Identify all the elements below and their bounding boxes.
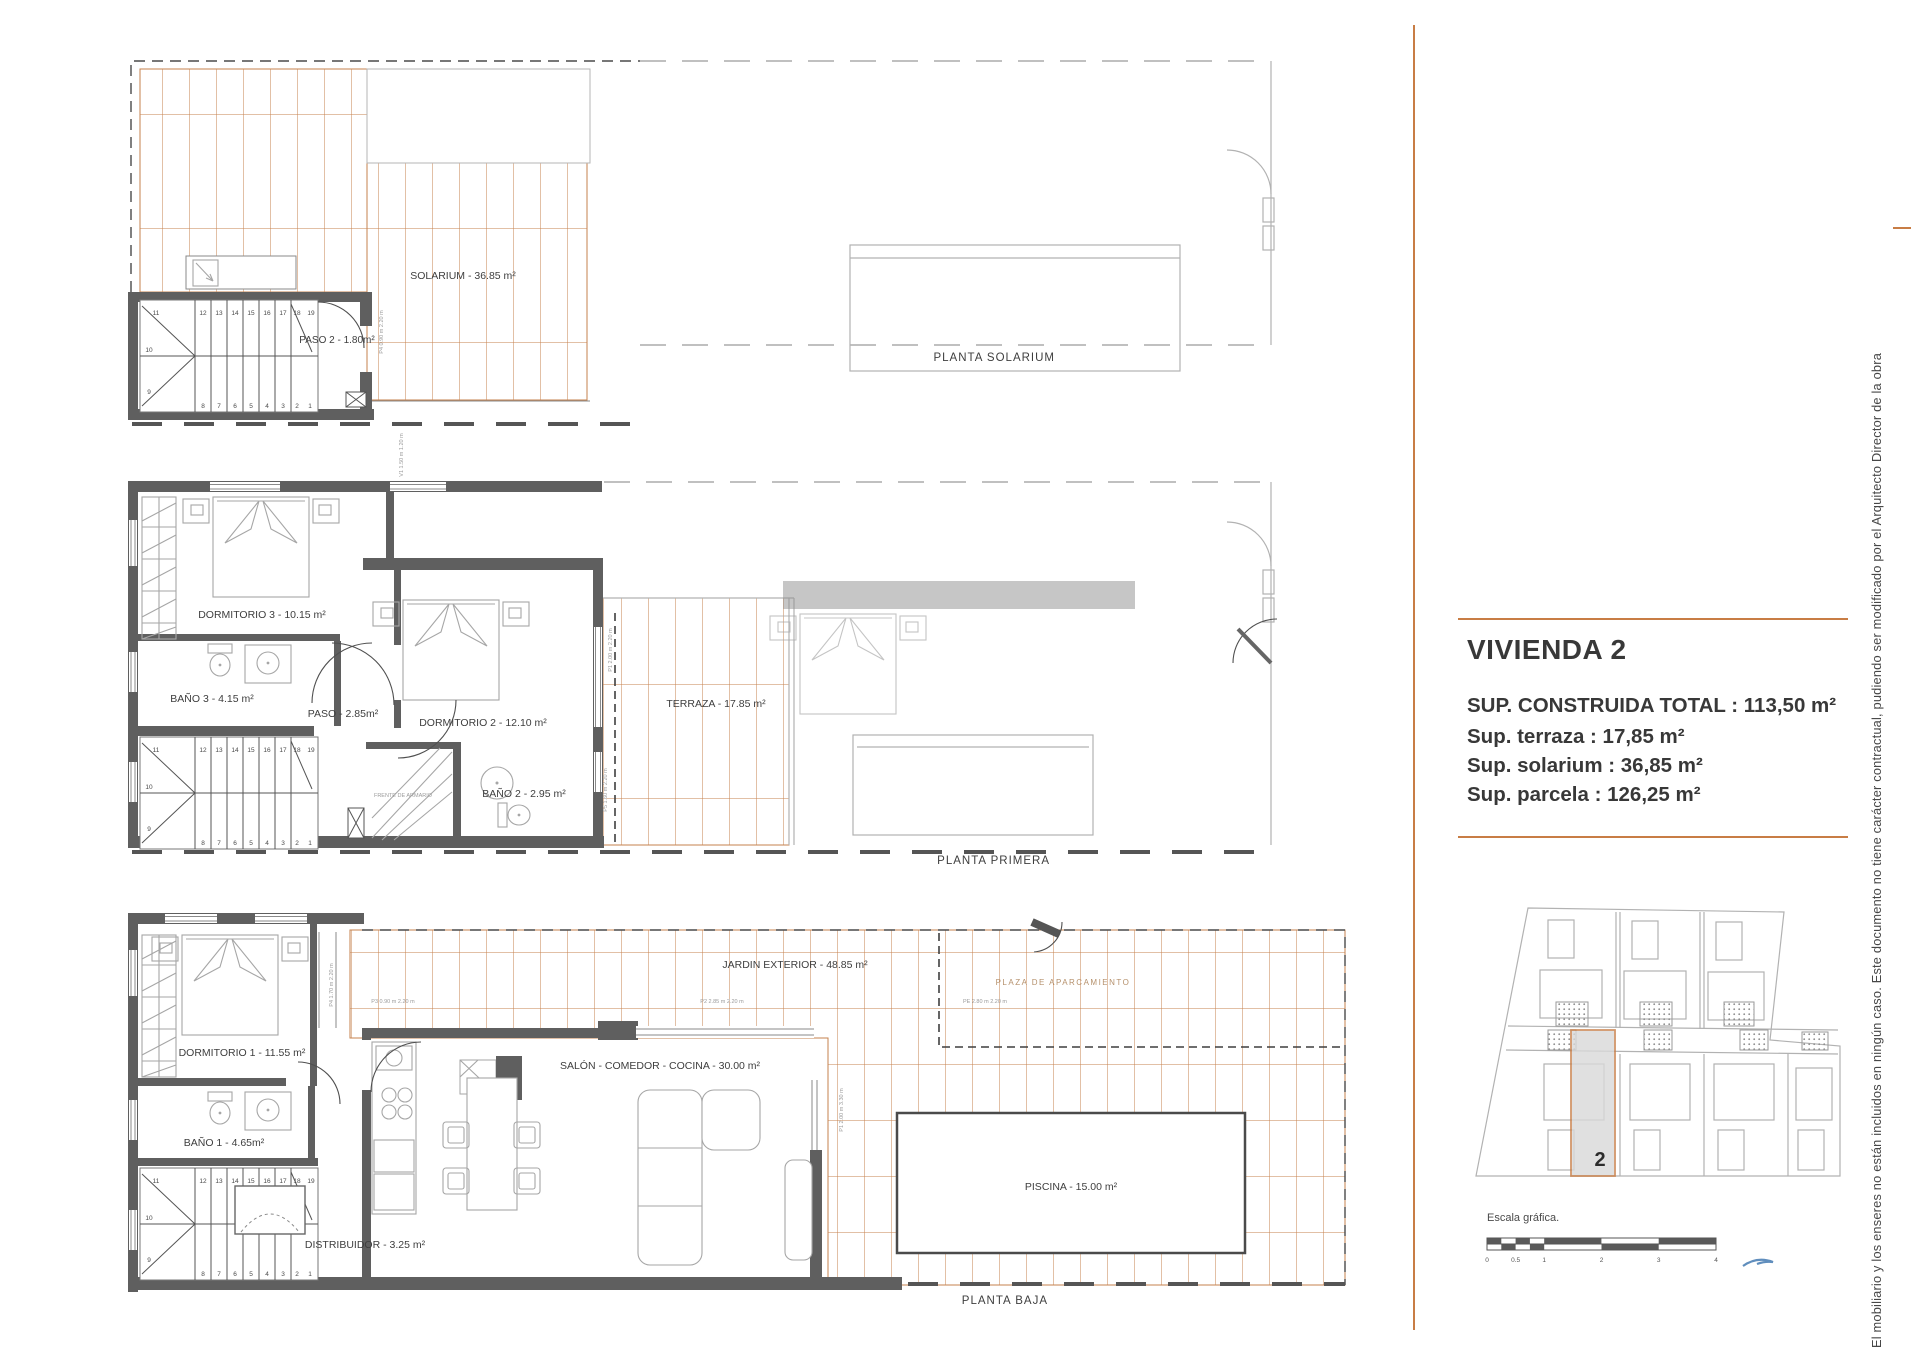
terraza-tiles — [603, 598, 789, 845]
summary-rule-bottom — [1458, 836, 1848, 838]
dim-label: P4 1.70 m 2.20 m — [329, 963, 335, 1007]
panel-divider-line — [1413, 25, 1415, 1330]
scale-tick: 1 — [1542, 1257, 1546, 1264]
dim-label: P4 0.90 m 2.20 m — [379, 310, 385, 354]
dim-label: P1 2.00 m 2.20 m — [608, 628, 614, 672]
room-label-bano2: BAÑO 2 - 2.95 m² — [482, 787, 566, 800]
room-label-terraza: TERRAZA - 17.85 m² — [666, 698, 766, 710]
room-label-solarium: SOLARIUM - 36.85 m² — [410, 270, 516, 282]
roof-hatch — [186, 256, 296, 289]
scale-tick: 4 — [1714, 1257, 1718, 1264]
dim-label: PE 2.80 m 2.20 m — [963, 999, 1007, 1005]
shaft — [346, 392, 366, 407]
shaft — [348, 808, 364, 838]
highlighted-unit: 2 — [1571, 1030, 1615, 1176]
scale-tick: 3 — [1657, 1257, 1661, 1264]
scale-bar — [1487, 1238, 1716, 1250]
disclaimer-text: El mobiliario y los enseres no están inc… — [1869, 353, 1884, 1348]
scale-tick: 2 — [1600, 1257, 1604, 1264]
room-label-jardin: JARDIN EXTERIOR - 48.85 m² — [722, 959, 868, 971]
scale-label: Escala gráfica. — [1487, 1212, 1559, 1224]
scale-ticks: 0 0.5 1 2 3 4 — [1485, 1257, 1718, 1264]
site-key-map: 2 — [1448, 878, 1843, 1178]
unit-title: VIVIENDA 2 — [1467, 634, 1627, 666]
room-label-bano3: BAÑO 3 - 4.15 m² — [170, 692, 254, 705]
plan-title-primera: PLANTA PRIMERA — [937, 855, 1050, 867]
dim-label: P5 1.60 m 2.20 m — [603, 768, 609, 812]
dim-label: P3 0.90 m 2.20 m — [371, 999, 415, 1005]
plan-title-solarium: PLANTA SOLARIUM — [933, 352, 1055, 364]
graphic-scale: 0 0.5 1 2 3 4 — [1482, 1232, 1742, 1276]
room-label-piscina: PISCINA - 15.00 m² — [1025, 1181, 1118, 1193]
room-label-plaza: PLAZA DE APARCAMIENTO — [996, 978, 1131, 987]
room-label-dormitorio2: DORMITORIO 2 - 12.10 m² — [419, 717, 547, 729]
neighbor-outline — [770, 482, 1277, 845]
summary-line-terraza: Sup. terraza : 17,85 m² — [1467, 725, 1685, 749]
unit-number: 2 — [1594, 1149, 1605, 1171]
pen-mark — [1730, 1245, 1810, 1285]
room-label-paso2: PASO 2 - 1.80m² — [299, 335, 375, 346]
floor-plan-solarium: 11 12 13 14 15 16 17 18 19 10 9 8 7 6 5 … — [105, 40, 1365, 432]
room-label-dormitorio3: DORMITORIO 3 - 10.15 m² — [198, 609, 326, 621]
scale-tick: 0.5 — [1511, 1257, 1520, 1264]
dim-label: P2 2.85 m 2.20 m — [700, 999, 744, 1005]
summary-line-parcela: Sup. parcela : 126,25 m² — [1467, 783, 1701, 807]
room-label-paso: PASO - 2.85m² — [308, 708, 379, 720]
floor-plan-primera: FRENTE DE ARMARIO DORMITO — [105, 440, 1365, 880]
room-label-distribuidor: DISTRIBUIDOR - 3.25 m² — [305, 1239, 426, 1251]
closet: FRENTE DE ARMARIO — [372, 748, 452, 840]
neighbor-void — [367, 69, 590, 163]
plan-sheet: 11 12 13 14 15 16 17 18 19 10 9 8 7 6 5 … — [0, 0, 1920, 1357]
plan-title-baja: PLANTA BAJA — [962, 1295, 1048, 1307]
summary-line-solarium: Sup. solarium : 36,85 m² — [1467, 754, 1703, 778]
scale-tick: 0 — [1485, 1257, 1489, 1264]
floor-plan-baja: DORMITORIO 1 - 11.55 m² BAÑO 1 - 4.65m² … — [105, 900, 1365, 1320]
summary-rule-top — [1458, 618, 1848, 620]
closet-label: FRENTE DE ARMARIO — [374, 793, 433, 799]
dim-label: P1 2.00 m 3.30 m — [839, 1088, 845, 1132]
neighbor-outline — [850, 61, 1274, 371]
edge-tick — [1893, 227, 1911, 229]
room-label-dormitorio1: DORMITORIO 1 - 11.55 m² — [179, 1047, 306, 1059]
room-label-bano1: BAÑO 1 - 4.65m² — [184, 1136, 265, 1149]
room-label-salon: SALÓN - COMEDOR - COCINA - 30.00 m² — [560, 1059, 761, 1072]
summary-line-total: SUP. CONSTRUIDA TOTAL : 113,50 m² — [1467, 694, 1836, 718]
stair-closet — [235, 1186, 305, 1234]
sofa-set — [638, 1090, 812, 1265]
dining-set — [443, 1078, 540, 1210]
dim-label: V1 1.50 m 1.20 m — [399, 433, 405, 477]
